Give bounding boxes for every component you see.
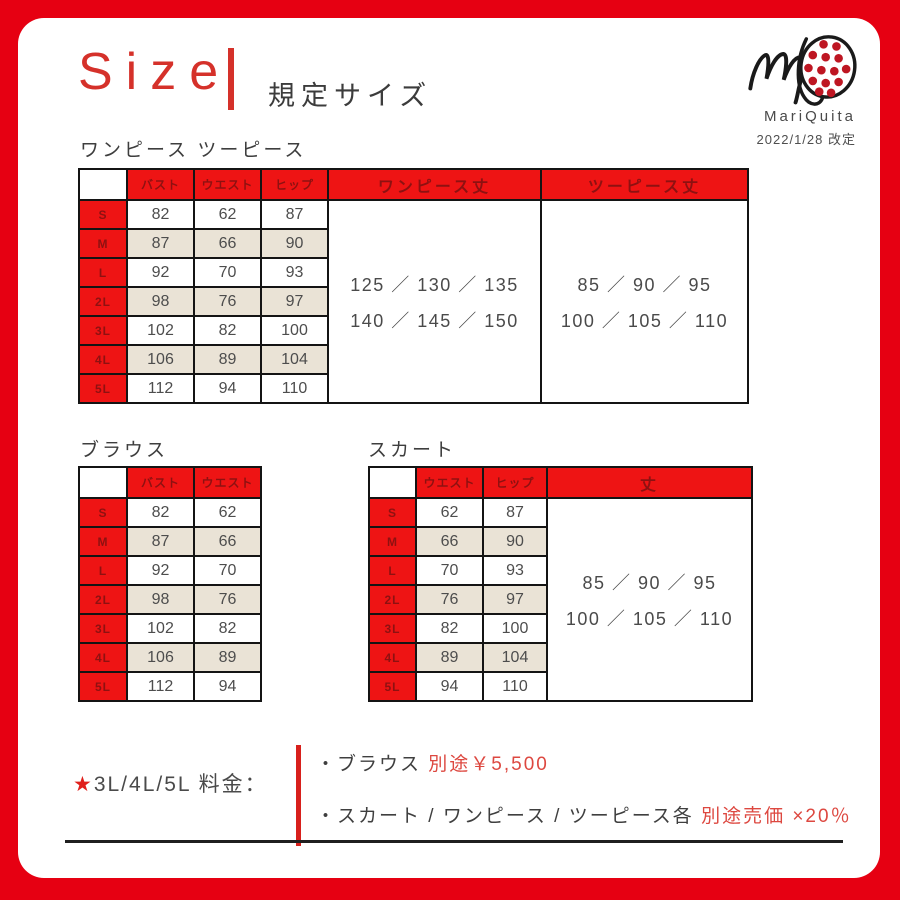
length-values: 140 ／ 145 ／ 150 — [329, 307, 540, 333]
blank-corner-cell — [369, 467, 416, 498]
measurement-cell: 102 — [127, 614, 194, 643]
measurement-cell: 104 — [261, 345, 328, 374]
page-subtitle: 規定サイズ — [268, 74, 432, 113]
size-label: 3L — [79, 614, 127, 643]
measurement-cell: 104 — [483, 643, 547, 672]
measurement-cell: 62 — [194, 200, 261, 229]
twopiece-length-cell: 85 ／ 90 ／ 95100 ／ 105 ／ 110 — [541, 200, 748, 403]
col-header-skirt-length: 丈 — [547, 467, 752, 498]
size-label: L — [79, 258, 127, 287]
measurement-cell: 70 — [194, 556, 261, 585]
fee-item-text: ・スカート / ワンピース / ツーピース各 — [316, 806, 701, 827]
skirt-table: ウエスト ヒップ 丈 S628785 ／ 90 ／ 95100 ／ 105 ／ … — [368, 466, 753, 702]
measurement-cell: 87 — [261, 200, 328, 229]
measurement-cell: 62 — [416, 498, 483, 527]
measurement-cell: 82 — [127, 200, 194, 229]
bottom-rule — [65, 840, 843, 843]
table-row: 4L10689 — [79, 643, 261, 672]
length-values: 125 ／ 130 ／ 135 — [329, 271, 540, 297]
measurement-cell: 112 — [127, 374, 194, 403]
revision-date: 2022/1/28 改定 — [757, 129, 856, 148]
measurement-cell: 90 — [261, 229, 328, 258]
col-header-waist: ウエスト — [194, 169, 261, 200]
measurement-cell: 102 — [127, 316, 194, 345]
col-header-waist: ウエスト — [194, 467, 261, 498]
size-label: M — [79, 527, 127, 556]
blank-corner-cell — [79, 169, 127, 200]
measurement-cell: 70 — [194, 258, 261, 287]
measurement-cell: 106 — [127, 345, 194, 374]
table-row: 2L9876 — [79, 585, 261, 614]
measurement-cell: 82 — [127, 498, 194, 527]
fee-item-text: ・ブラウス — [316, 754, 428, 775]
brand-name: MariQuita — [764, 108, 856, 125]
size-label: 3L — [79, 316, 127, 345]
measurement-cell: 76 — [194, 287, 261, 316]
measurement-cell: 89 — [194, 643, 261, 672]
page-title: Size — [78, 46, 231, 98]
size-label: L — [369, 556, 416, 585]
measurement-cell: 62 — [194, 498, 261, 527]
table-header-row: ウエスト ヒップ 丈 — [369, 467, 752, 498]
col-header-hip: ヒップ — [483, 467, 547, 498]
fee-item-blouse: ・ブラウス 別途￥5,500 — [316, 749, 549, 776]
section-title-skirt: スカート — [368, 435, 456, 462]
length-values: 100 ／ 105 ／ 110 — [542, 307, 747, 333]
measurement-cell: 82 — [416, 614, 483, 643]
measurement-cell: 76 — [416, 585, 483, 614]
size-label: 5L — [79, 374, 127, 403]
fee-label: ★3L/4L/5L 料金： — [73, 768, 268, 798]
measurement-cell: 112 — [127, 672, 194, 701]
table-row: 3L10282 — [79, 614, 261, 643]
measurement-cell: 66 — [194, 229, 261, 258]
brand-logo-icon — [736, 26, 868, 110]
measurement-cell: 93 — [483, 556, 547, 585]
size-label: 5L — [369, 672, 416, 701]
skirt-length-cell: 85 ／ 90 ／ 95100 ／ 105 ／ 110 — [547, 498, 752, 701]
col-header-waist: ウエスト — [416, 467, 483, 498]
size-label: 4L — [369, 643, 416, 672]
table-row: 5L11294 — [79, 672, 261, 701]
onepiece-twopiece-table: バスト ウエスト ヒップ ワンピース丈 ツーピース丈 S826287125 ／ … — [78, 168, 749, 404]
measurement-cell: 90 — [483, 527, 547, 556]
fee-label-text: 3L/4L/5L 料金： — [94, 773, 268, 796]
measurement-cell: 92 — [127, 258, 194, 287]
col-header-onepiece-length: ワンピース丈 — [328, 169, 541, 200]
measurement-cell: 94 — [194, 672, 261, 701]
size-label: 2L — [369, 585, 416, 614]
size-label: L — [79, 556, 127, 585]
col-header-twopiece-length: ツーピース丈 — [541, 169, 748, 200]
measurement-cell: 82 — [194, 614, 261, 643]
table-header-row: バスト ウエスト ヒップ ワンピース丈 ツーピース丈 — [79, 169, 748, 200]
measurement-cell: 110 — [261, 374, 328, 403]
blank-corner-cell — [79, 467, 127, 498]
size-label: 4L — [79, 345, 127, 374]
measurement-cell: 98 — [127, 585, 194, 614]
measurement-cell: 82 — [194, 316, 261, 345]
table-row: M8766 — [79, 527, 261, 556]
col-header-bust: バスト — [127, 467, 194, 498]
title-divider-bar — [228, 48, 234, 110]
table-header-row: バスト ウエスト — [79, 467, 261, 498]
section-title-onepiece: ワンピース ツーピース — [80, 135, 306, 162]
measurement-cell: 89 — [194, 345, 261, 374]
measurement-cell: 93 — [261, 258, 328, 287]
measurement-cell: 92 — [127, 556, 194, 585]
table-row: L9270 — [79, 556, 261, 585]
length-values: 100 ／ 105 ／ 110 — [548, 605, 751, 631]
size-label: 4L — [79, 643, 127, 672]
length-values: 85 ／ 90 ／ 95 — [542, 271, 747, 297]
onepiece-length-cell: 125 ／ 130 ／ 135140 ／ 145 ／ 150 — [328, 200, 541, 403]
measurement-cell: 87 — [127, 229, 194, 258]
table-row: S628785 ／ 90 ／ 95100 ／ 105 ／ 110 — [369, 498, 752, 527]
measurement-cell: 106 — [127, 643, 194, 672]
measurement-cell: 89 — [416, 643, 483, 672]
size-label: M — [79, 229, 127, 258]
measurement-cell: 97 — [261, 287, 328, 316]
size-label: 2L — [79, 287, 127, 316]
measurement-cell: 76 — [194, 585, 261, 614]
col-header-hip: ヒップ — [261, 169, 328, 200]
fee-item-price: 別途￥5,500 — [428, 754, 549, 775]
measurement-cell: 66 — [194, 527, 261, 556]
measurement-cell: 87 — [127, 527, 194, 556]
content-panel: Size 規定サイズ MariQuita 2022/1/28 改定 ワンピース … — [18, 18, 880, 878]
fee-item-garments: ・スカート / ワンピース / ツーピース各 別途売価 ×20％ — [316, 801, 852, 828]
measurement-cell: 110 — [483, 672, 547, 701]
size-label: 5L — [79, 672, 127, 701]
measurement-cell: 94 — [416, 672, 483, 701]
measurement-cell: 70 — [416, 556, 483, 585]
section-title-blouse: ブラウス — [80, 435, 168, 462]
star-icon: ★ — [73, 773, 94, 796]
measurement-cell: 94 — [194, 374, 261, 403]
size-label: S — [369, 498, 416, 527]
blouse-table: バスト ウエスト S8262M8766L92702L98763L102824L1… — [78, 466, 262, 702]
size-label: 3L — [369, 614, 416, 643]
length-values: 85 ／ 90 ／ 95 — [548, 569, 751, 595]
measurement-cell: 100 — [261, 316, 328, 345]
size-label: 2L — [79, 585, 127, 614]
measurement-cell: 66 — [416, 527, 483, 556]
red-frame: Size 規定サイズ MariQuita 2022/1/28 改定 ワンピース … — [0, 0, 900, 900]
size-label: M — [369, 527, 416, 556]
table-row: S826287125 ／ 130 ／ 135140 ／ 145 ／ 15085 … — [79, 200, 748, 229]
measurement-cell: 100 — [483, 614, 547, 643]
measurement-cell: 98 — [127, 287, 194, 316]
fee-item-price: 別途売価 ×20％ — [701, 806, 852, 827]
table-row: S8262 — [79, 498, 261, 527]
fee-divider-bar — [296, 745, 301, 846]
size-label: S — [79, 498, 127, 527]
measurement-cell: 97 — [483, 585, 547, 614]
col-header-bust: バスト — [127, 169, 194, 200]
size-label: S — [79, 200, 127, 229]
measurement-cell: 87 — [483, 498, 547, 527]
